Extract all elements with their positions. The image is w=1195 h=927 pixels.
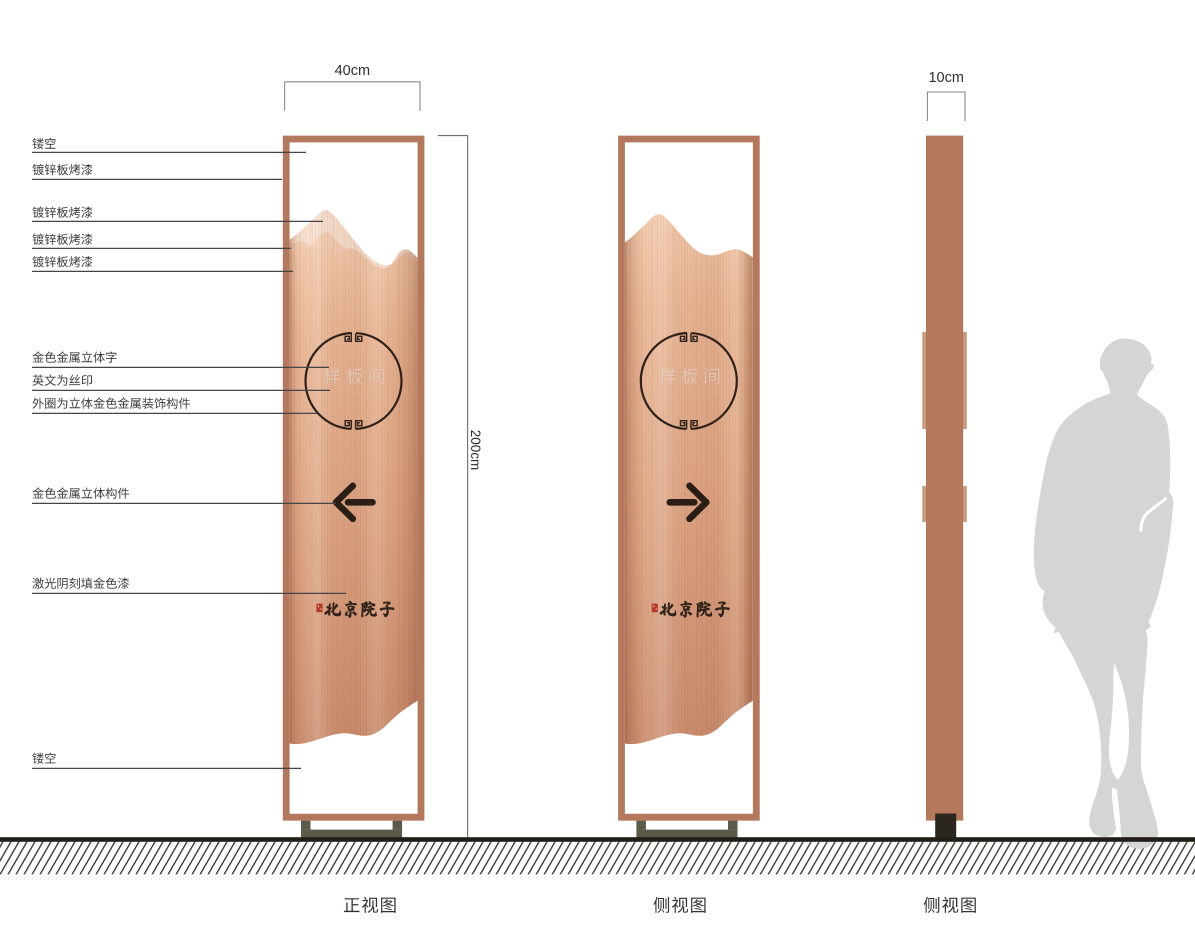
svg-text:10cm: 10cm: [928, 70, 963, 86]
svg-text:SAMPLE DISPLAY ROOM: SAMPLE DISPLAY ROOM: [656, 390, 723, 395]
svg-text:40cm: 40cm: [335, 63, 370, 79]
svg-text:SAMPLE DISPLAY ROOM: SAMPLE DISPLAY ROOM: [321, 390, 388, 395]
svg-text:200cm: 200cm: [468, 430, 483, 471]
